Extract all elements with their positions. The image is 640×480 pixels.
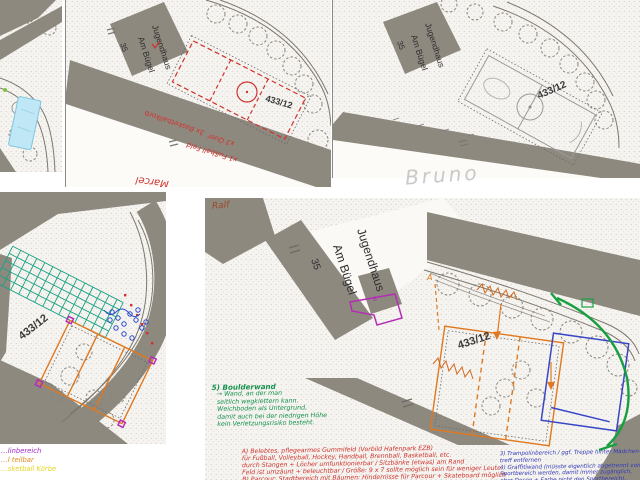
- plan-panel-top-right: 433/12 Jugendhaus Am Bügel 35: [332, 0, 640, 178]
- plan-top-right-drawing: 433/12 Jugendhaus Am Bügel 35: [333, 0, 640, 178]
- green-dot-marker: [3, 88, 7, 92]
- plan-panel-top-middle: 433/12 Jugendhaus Am Bügel 35 3x Basketb…: [65, 0, 331, 187]
- legend-purple: …linbereich: [1, 447, 56, 456]
- red-dot: [246, 91, 248, 93]
- note-boulderwand: 5) Boulderwand → Wand, an der man seitli…: [212, 382, 328, 428]
- plan-panel-bottom-right: B: [205, 198, 640, 480]
- color-legend: …linbereich …l teilbar …sketball Körbe: [1, 447, 56, 474]
- signature-ralf: Ralf: [212, 200, 230, 211]
- note-gummifeld: A) Belebtes, pflegearmes Gummifeld (Vorb…: [242, 444, 506, 480]
- plan-panel-top-left: [0, 0, 62, 172]
- plan-bottom-right-drawing: B: [205, 198, 640, 480]
- legend-orange: …l teilbar: [1, 456, 56, 465]
- note-trampolin-graffiti: 3) Trampolinbereich / ggf. Treppe hinter…: [500, 449, 640, 480]
- signature-bruno: Bruno: [404, 160, 480, 189]
- purple-marker-label: B: [373, 296, 377, 303]
- plan-panel-bottom-left: 433/12: [0, 192, 166, 444]
- plan-top-left-drawing: [0, 0, 62, 172]
- scanned-plan-collage: 433/12 Jugendhaus Am Bügel 35 3x Basketb…: [0, 0, 640, 480]
- plan-bottom-left-drawing: 433/12: [0, 192, 166, 444]
- legend-yellow: …sketball Körbe: [1, 465, 56, 474]
- orange-marker-label: A: [426, 273, 432, 282]
- plan-top-middle-drawing: 433/12 Jugendhaus Am Bügel 35 3x Basketb…: [66, 0, 331, 187]
